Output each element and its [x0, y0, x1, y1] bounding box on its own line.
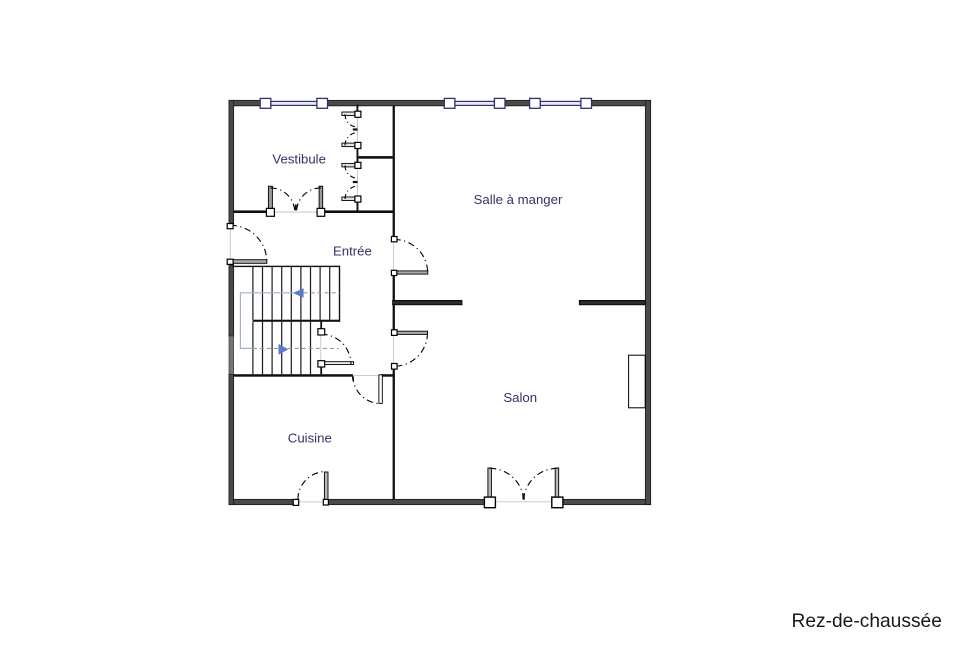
svg-text:Rez-de-chaussée: Rez-de-chaussée [792, 611, 942, 632]
svg-text:Entrée: Entrée [333, 243, 372, 258]
svg-text:Salle à manger: Salle à manger [474, 192, 563, 207]
svg-text:Cuisine: Cuisine [288, 430, 332, 445]
svg-text:Salon: Salon [503, 390, 537, 405]
svg-text:Vestibule: Vestibule [272, 151, 326, 166]
